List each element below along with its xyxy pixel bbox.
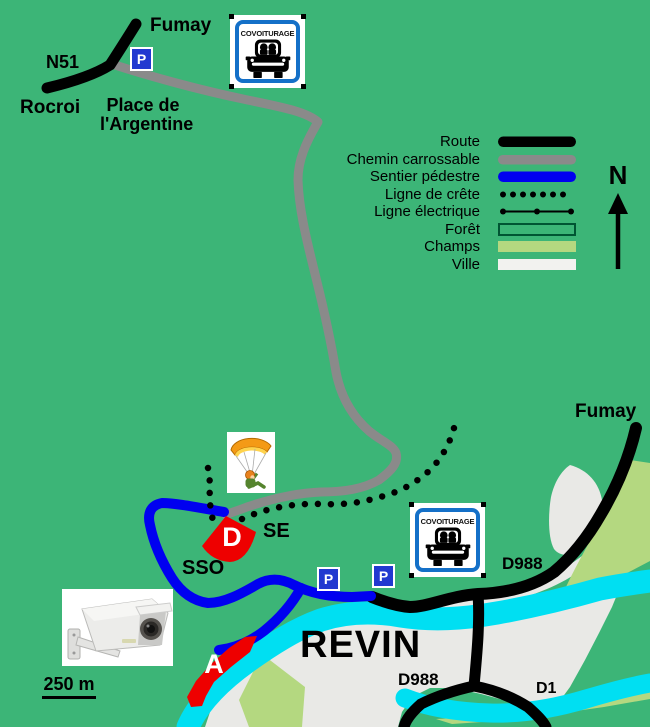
webcam-drawing: [62, 589, 173, 666]
legend-row-ridge: Ligne de crête: [250, 188, 576, 202]
paraglider-icon: [227, 432, 275, 493]
label-fumay-north: Fumay: [150, 16, 211, 36]
fields-swatch: [498, 240, 576, 253]
legend-label-town: Ville: [250, 256, 480, 273]
parking-icon-east: P: [372, 564, 395, 588]
track-swatch: [498, 153, 576, 166]
legend-row-route: Route: [250, 135, 576, 149]
covoiturage-label: COVOITURAGE: [421, 517, 475, 526]
ridge-swatch: [498, 188, 576, 201]
webcam-icon: [62, 589, 173, 666]
selection-handle: [301, 84, 306, 89]
selection-handle: [409, 573, 414, 578]
footpath-swatch: [498, 170, 576, 183]
legend-label-route: Route: [250, 133, 480, 150]
parking-icon-argentine: P: [130, 47, 153, 71]
selection-handle: [409, 502, 414, 507]
car-icon: [244, 38, 292, 78]
legend-row-footpath: Sentier pédestre: [250, 170, 576, 184]
legend-row-electric: Ligne électrique: [250, 205, 576, 219]
label-d988-upper: D988: [502, 555, 543, 573]
legend-label-fields: Champs: [250, 238, 480, 255]
car-icon: [424, 526, 472, 566]
legend-row-track: Chemin carrossable: [250, 153, 576, 167]
north-arrow-icon: [600, 191, 636, 271]
legend-label-electric: Ligne électrique: [250, 203, 480, 220]
label-place-argentine-2: l'Argentine: [100, 115, 192, 134]
north-indicator: N: [600, 160, 636, 276]
label-d988-lower: D988: [398, 671, 439, 689]
landing-letter: A: [199, 650, 229, 678]
label-fumay-east: Fumay: [575, 402, 636, 422]
label-place-argentine-1: Place de: [100, 96, 186, 115]
label-revin: REVIN: [300, 626, 421, 666]
route-swatch: [498, 135, 576, 148]
label-takeoff-direction-sso: SSO: [182, 558, 224, 579]
legend: Route Chemin carrossable Sentier pédestr…: [250, 135, 576, 271]
legend-label-ridge: Ligne de crête: [250, 186, 480, 203]
parking-letter: P: [137, 51, 146, 67]
covoiturage-label: COVOITURAGE: [241, 29, 295, 38]
town-swatch: [498, 258, 576, 271]
ridge-line-north: [208, 468, 214, 528]
selection-handle: [229, 84, 234, 89]
selection-handle: [481, 573, 486, 578]
legend-label-forest: Forêt: [250, 221, 480, 238]
parking-icon-west: P: [317, 567, 340, 591]
parking-letter: P: [379, 568, 388, 584]
label-n51: N51: [46, 53, 79, 72]
road-d988-vertical: [474, 594, 479, 686]
selection-handle: [301, 14, 306, 19]
label-d1: D1: [536, 681, 556, 698]
forest-swatch: [498, 223, 576, 236]
north-letter: N: [600, 160, 636, 191]
takeoff-letter: D: [217, 523, 247, 551]
parking-letter: P: [324, 571, 333, 587]
legend-row-forest: Forêt: [250, 223, 576, 237]
selection-handle: [481, 502, 486, 507]
label-rocroi: Rocroi: [20, 98, 80, 118]
legend-label-footpath: Sentier pédestre: [250, 168, 480, 185]
label-takeoff-direction-se: SE: [263, 521, 290, 542]
sign-frame: COVOITURAGE: [415, 508, 480, 572]
legend-row-town: Ville: [250, 258, 576, 272]
electric-swatch: [498, 205, 576, 218]
selection-handle: [229, 14, 234, 19]
covoiturage-sign-revin: COVOITURAGE: [410, 503, 485, 577]
scale-bar: 250 m: [42, 674, 96, 699]
map-canvas: Route Chemin carrossable Sentier pédestr…: [0, 0, 650, 727]
legend-row-fields: Champs: [250, 240, 576, 254]
sign-frame: COVOITURAGE: [235, 20, 300, 83]
paraglider-drawing: [227, 432, 275, 493]
covoiturage-sign-north: COVOITURAGE: [230, 15, 305, 88]
legend-label-track: Chemin carrossable: [250, 151, 480, 168]
